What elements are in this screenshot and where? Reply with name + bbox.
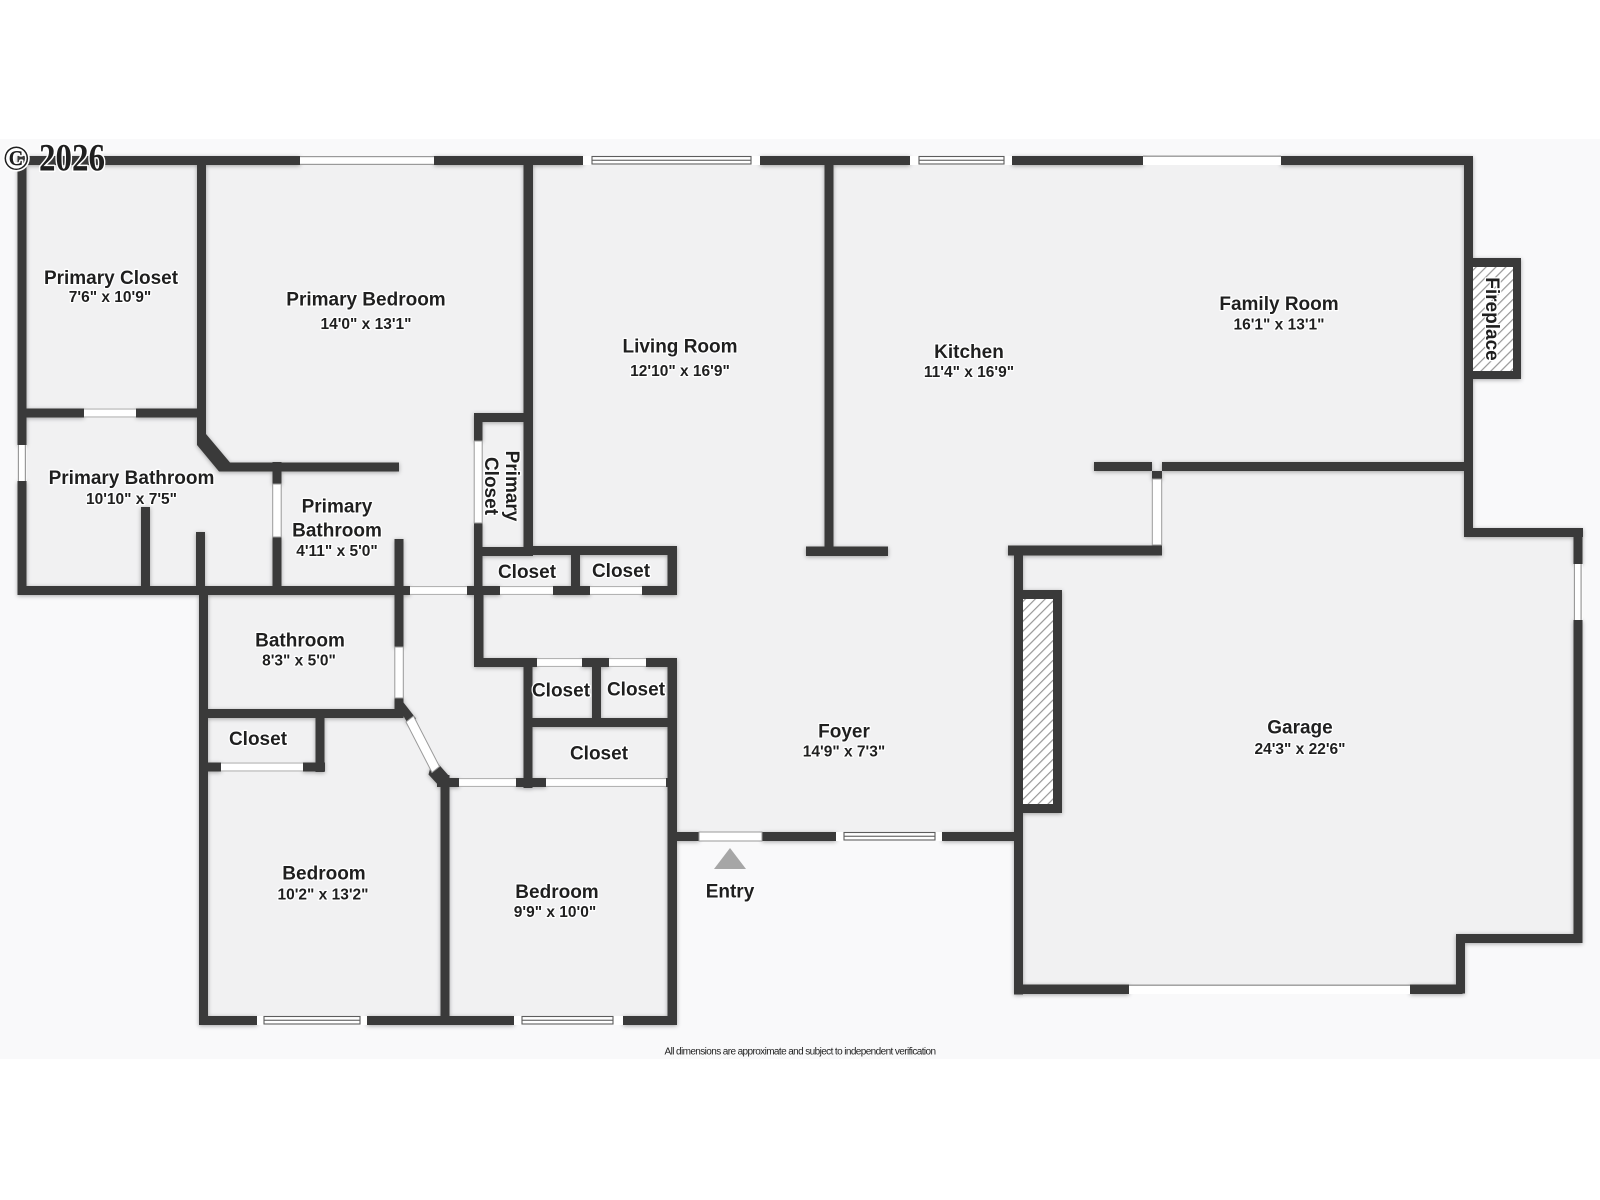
svg-text:Garage: Garage: [1267, 718, 1332, 739]
svg-text:All dimensions are approximate: All dimensions are approximate and subje…: [665, 1047, 936, 1058]
svg-text:Family Room: Family Room: [1219, 294, 1338, 315]
svg-text:8'3" x 5'0": 8'3" x 5'0": [262, 652, 336, 669]
svg-text:Primary: Primary: [302, 497, 373, 518]
svg-text:Closet: Closet: [592, 561, 651, 582]
svg-text:10'2" x 13'2": 10'2" x 13'2": [277, 886, 368, 903]
svg-text:Entry: Entry: [706, 882, 755, 903]
svg-text:Bedroom: Bedroom: [282, 864, 365, 885]
svg-text:Foyer: Foyer: [818, 722, 870, 743]
svg-text:Closet: Closet: [229, 729, 288, 750]
svg-text:Closet: Closet: [607, 680, 666, 701]
svg-text:Closet: Closet: [570, 744, 629, 765]
svg-text:7'6" x 10'9": 7'6" x 10'9": [69, 289, 151, 306]
svg-text:Primary Bathroom: Primary Bathroom: [49, 468, 215, 489]
svg-text:Primary: Primary: [501, 451, 522, 522]
svg-text:Kitchen: Kitchen: [934, 342, 1004, 363]
svg-text:Bathroom: Bathroom: [292, 521, 382, 542]
svg-text:14'0" x 13'1": 14'0" x 13'1": [320, 316, 411, 333]
svg-text:Fireplace: Fireplace: [1481, 277, 1502, 360]
svg-text:Living Room: Living Room: [622, 337, 737, 358]
svg-text:4'11" x 5'0": 4'11" x 5'0": [296, 543, 378, 560]
svg-text:Closet: Closet: [532, 681, 591, 702]
svg-text:14'9" x 7'3": 14'9" x 7'3": [803, 743, 885, 760]
svg-text:Bedroom: Bedroom: [515, 882, 598, 903]
svg-text:12'10" x 16'9": 12'10" x 16'9": [630, 363, 730, 380]
svg-text:24'3" x 22'6": 24'3" x 22'6": [1254, 741, 1345, 758]
svg-text:10'10" x 7'5": 10'10" x 7'5": [86, 491, 177, 508]
svg-text:11'4" x 16'9": 11'4" x 16'9": [924, 364, 1014, 381]
svg-text:2026: 2026: [39, 137, 105, 180]
svg-text:9'9" x 10'0": 9'9" x 10'0": [514, 904, 596, 921]
svg-text:16'1" x 13'1": 16'1" x 13'1": [1233, 316, 1324, 333]
svg-text:Closet: Closet: [498, 562, 557, 583]
svg-text:Primary Closet: Primary Closet: [44, 268, 179, 289]
svg-text:Bathroom: Bathroom: [255, 631, 345, 652]
svg-text:Closet: Closet: [480, 457, 501, 516]
svg-text:©: ©: [3, 139, 29, 178]
svg-text:Primary Bedroom: Primary Bedroom: [286, 290, 445, 311]
